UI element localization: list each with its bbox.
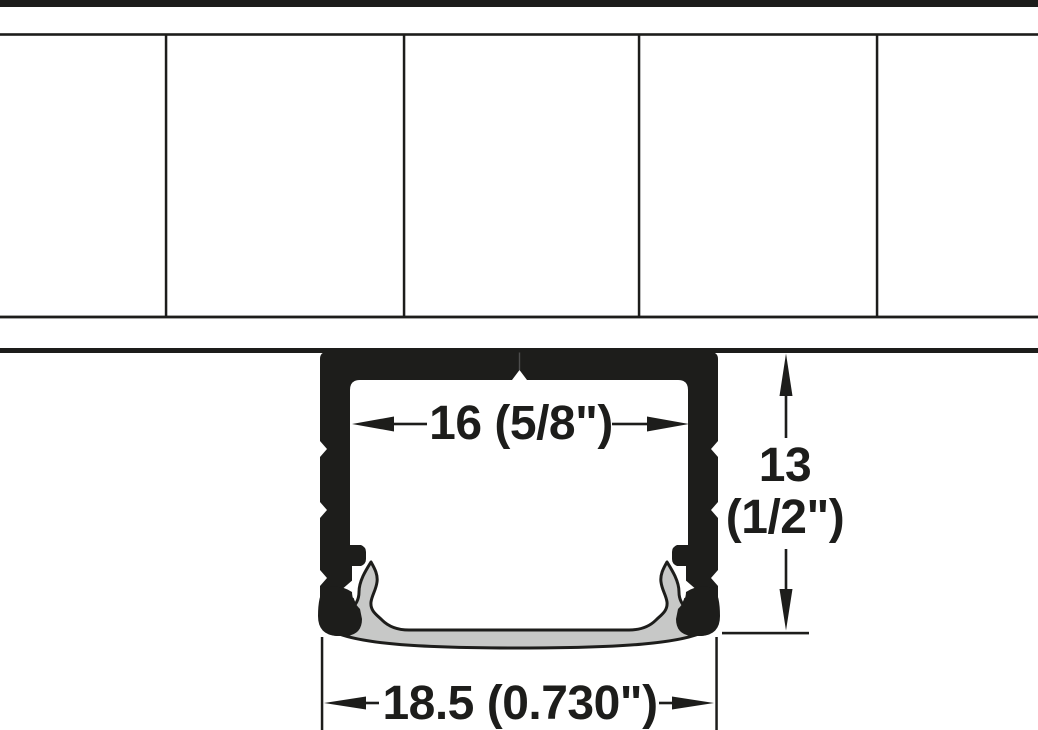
arrow-down-icon [780, 589, 793, 631]
extension-tick [722, 632, 809, 635]
diffuser-lens [325, 562, 713, 648]
clip-pockets [340, 572, 698, 598]
profile-cross-section-drawing [0, 0, 1038, 730]
arrow-up-icon [780, 354, 793, 397]
profile-channel-body [320, 352, 718, 636]
arrow-left-icon [352, 417, 394, 432]
height-dimension-label: 13 (1/2") [726, 440, 844, 544]
extension-line-right [715, 637, 718, 730]
ceiling-panels [0, 0, 1038, 353]
panel-joint-lines [165, 35, 879, 317]
arrow-right-icon [647, 417, 689, 432]
overall-width-dimension-label: 18.5 (0.730") [382, 678, 657, 730]
arrow-left-icon [324, 697, 366, 710]
panel-top-line [0, 33, 1038, 36]
height-value: 13 [726, 440, 844, 492]
height-imperial-value: (1/2") [726, 492, 844, 544]
top-edge-band [0, 0, 1038, 7]
extension-line-left [321, 637, 324, 730]
inner-width-dimension-label: 16 (5/8") [429, 398, 613, 450]
drawing-canvas: 16 (5/8") 13 (1/2") 18.5 (0.730") [0, 0, 1038, 730]
arrow-right-icon [672, 697, 714, 710]
panel-bottom-line [0, 316, 1038, 319]
